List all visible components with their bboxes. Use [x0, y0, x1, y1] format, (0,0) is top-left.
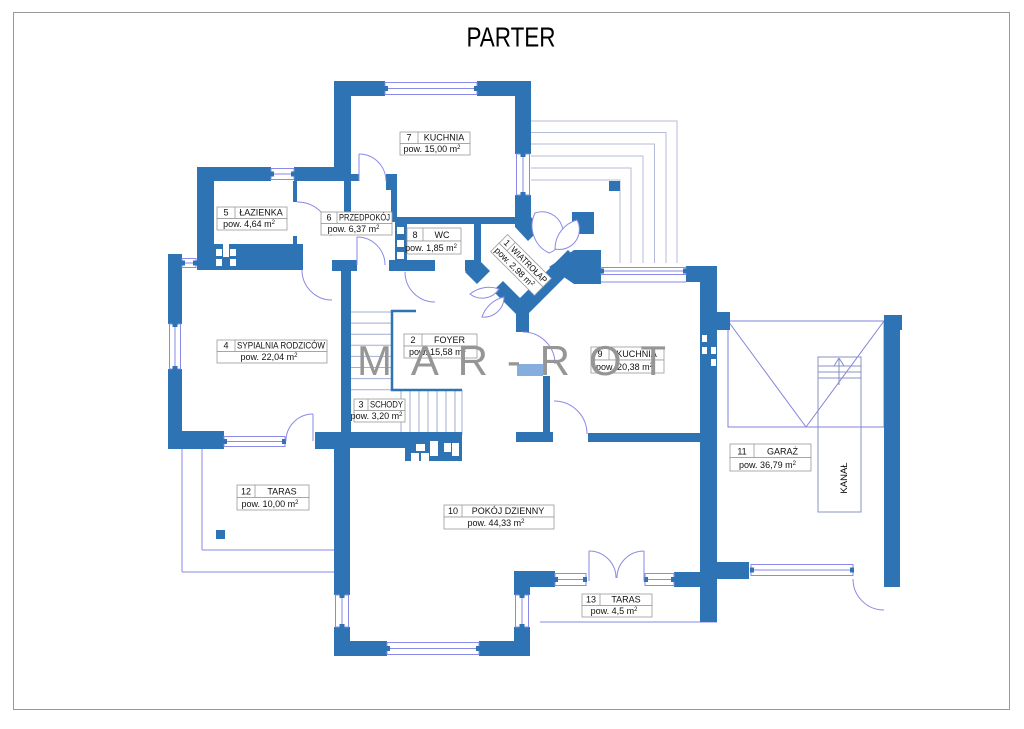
- svg-text:pow. 15,00 m2: pow. 15,00 m2: [404, 144, 462, 154]
- svg-text:POKÓJ DZIENNY: POKÓJ DZIENNY: [472, 506, 545, 516]
- svg-text:5: 5: [223, 208, 228, 218]
- svg-text:6: 6: [326, 213, 331, 223]
- svg-text:8: 8: [412, 230, 417, 240]
- svg-text:13: 13: [586, 595, 596, 605]
- svg-text:7: 7: [406, 133, 411, 143]
- svg-text:3: 3: [358, 400, 363, 410]
- svg-text:KANAŁ: KANAŁ: [839, 462, 850, 493]
- svg-text:12: 12: [241, 487, 251, 497]
- svg-text:PARTER: PARTER: [467, 22, 556, 53]
- svg-text:pow. 4,5 m2: pow. 4,5 m2: [591, 606, 639, 616]
- svg-text:pow. 22,04 m2: pow. 22,04 m2: [241, 352, 299, 362]
- svg-text:pow. 1,85 m2: pow. 1,85 m2: [405, 243, 458, 253]
- svg-text:ŁAZIENKA: ŁAZIENKA: [239, 208, 283, 218]
- svg-text:GARAŻ: GARAŻ: [767, 447, 799, 457]
- svg-text:11: 11: [737, 447, 746, 457]
- svg-text:TARAS: TARAS: [267, 487, 296, 497]
- svg-text:WC: WC: [435, 230, 450, 240]
- svg-text:10: 10: [448, 506, 458, 516]
- svg-text:SCHODY: SCHODY: [370, 400, 403, 410]
- svg-text:pow. 4,64 m2: pow. 4,64 m2: [223, 219, 276, 229]
- svg-text:pow. 6,37 m2: pow. 6,37 m2: [328, 224, 381, 234]
- svg-text:TARAS: TARAS: [611, 595, 640, 605]
- svg-text:pow. 3,20 m2: pow. 3,20 m2: [351, 411, 404, 421]
- svg-text:pow. 36,79 m2: pow. 36,79 m2: [739, 460, 797, 470]
- svg-text:4: 4: [223, 341, 228, 351]
- svg-text:SYPIALNIA RODZICÓW: SYPIALNIA RODZICÓW: [237, 341, 325, 351]
- svg-text:pow. 10,00 m2: pow. 10,00 m2: [242, 499, 300, 509]
- svg-text:PRZEDPOKÓJ: PRZEDPOKÓJ: [339, 213, 390, 223]
- svg-text:pow. 44,33 m2: pow. 44,33 m2: [468, 518, 526, 528]
- svg-text:KUCHNIA: KUCHNIA: [424, 133, 465, 143]
